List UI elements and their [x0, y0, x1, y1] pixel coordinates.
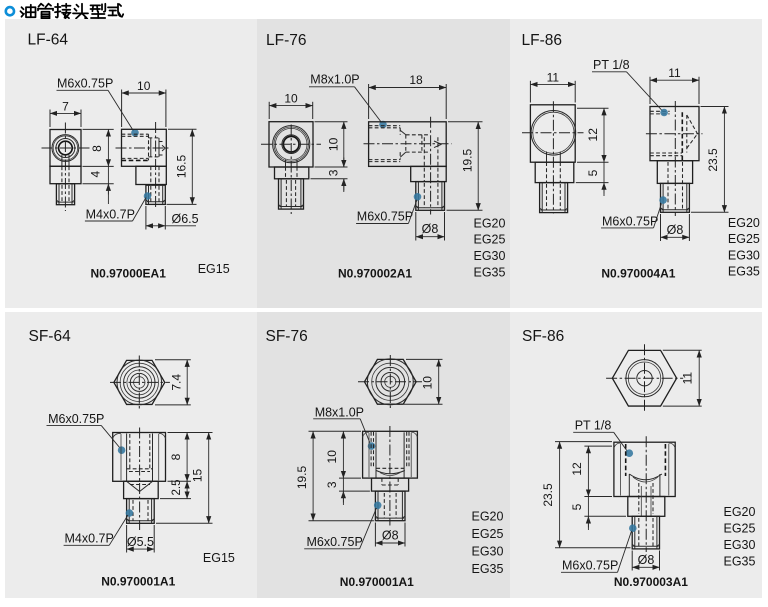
svg-text:19.5: 19.5: [295, 465, 309, 489]
svg-text:M6x0.75P: M6x0.75P: [57, 77, 113, 91]
svg-text:N0.970002A1: N0.970002A1: [338, 266, 412, 280]
svg-text:N0.97000EA1: N0.97000EA1: [91, 266, 167, 280]
svg-text:EG30: EG30: [724, 538, 756, 552]
svg-text:N0.970001A1: N0.970001A1: [340, 575, 414, 589]
svg-text:EG15: EG15: [203, 551, 235, 565]
svg-text:5: 5: [570, 503, 584, 510]
svg-text:8: 8: [90, 145, 104, 152]
svg-text:15: 15: [191, 469, 205, 483]
svg-text:10: 10: [421, 376, 435, 390]
svg-text:EG35: EG35: [472, 562, 504, 576]
svg-text:EG15: EG15: [198, 262, 230, 276]
svg-text:M4x0.7P: M4x0.7P: [86, 208, 135, 222]
svg-text:SF-86: SF-86: [522, 328, 564, 345]
svg-text:M4x0.7P: M4x0.7P: [65, 532, 114, 546]
svg-text:SF-64: SF-64: [29, 328, 72, 345]
svg-text:EG30: EG30: [728, 248, 760, 262]
svg-text:23.5: 23.5: [541, 483, 555, 507]
svg-text:3: 3: [326, 169, 340, 176]
svg-text:PT 1/8: PT 1/8: [593, 58, 630, 72]
svg-text:11: 11: [668, 66, 681, 80]
svg-text:M8x1.0P: M8x1.0P: [315, 405, 364, 419]
svg-text:11: 11: [547, 70, 560, 84]
svg-text:10: 10: [284, 92, 298, 106]
svg-text:PT 1/8: PT 1/8: [575, 419, 612, 433]
svg-text:EG25: EG25: [472, 527, 504, 541]
svg-text:M6x0.75P: M6x0.75P: [357, 210, 413, 224]
svg-text:M6x0.75P: M6x0.75P: [602, 214, 658, 228]
svg-text:Ø8: Ø8: [422, 222, 439, 236]
svg-text:LF-86: LF-86: [522, 32, 563, 49]
svg-text:18: 18: [409, 73, 423, 87]
svg-text:M6x0.75P: M6x0.75P: [307, 535, 363, 549]
svg-text:10: 10: [325, 450, 339, 464]
svg-text:12: 12: [570, 462, 584, 476]
svg-text:Ø8: Ø8: [667, 223, 684, 237]
svg-text:SF-76: SF-76: [266, 328, 308, 345]
svg-text:7: 7: [62, 100, 69, 114]
svg-text:8: 8: [169, 453, 183, 460]
svg-text:4: 4: [89, 171, 103, 178]
svg-text:EG25: EG25: [728, 232, 760, 246]
svg-text:Ø5.5: Ø5.5: [127, 535, 154, 549]
svg-text:LF-64: LF-64: [28, 31, 69, 48]
svg-text:N0.970001A1: N0.970001A1: [101, 575, 175, 589]
svg-text:EG25: EG25: [724, 522, 756, 536]
svg-text:Ø8: Ø8: [638, 553, 655, 567]
svg-text:EG35: EG35: [724, 555, 756, 569]
svg-text:EG20: EG20: [472, 509, 504, 523]
svg-text:3: 3: [325, 481, 339, 488]
svg-text:10: 10: [326, 137, 340, 151]
svg-text:11: 11: [681, 372, 695, 385]
svg-text:M6x0.75P: M6x0.75P: [562, 559, 618, 573]
svg-text:N0.970004A1: N0.970004A1: [601, 266, 675, 280]
svg-text:EG25: EG25: [474, 233, 506, 247]
svg-text:EG35: EG35: [474, 265, 506, 279]
svg-text:12: 12: [586, 128, 600, 142]
svg-text:23.5: 23.5: [706, 148, 720, 172]
svg-text:EG20: EG20: [728, 216, 760, 230]
svg-text:EG30: EG30: [474, 249, 506, 263]
svg-text:M8x1.0P: M8x1.0P: [310, 72, 359, 86]
svg-text:M6x0.75P: M6x0.75P: [48, 412, 104, 426]
svg-text:EG20: EG20: [474, 216, 506, 230]
svg-text:7.4: 7.4: [170, 374, 184, 391]
svg-text:Ø8: Ø8: [382, 529, 399, 543]
svg-text:EG20: EG20: [724, 505, 756, 519]
svg-text:10: 10: [137, 79, 151, 93]
svg-text:2.5: 2.5: [171, 480, 183, 496]
svg-text:N0.970003A1: N0.970003A1: [614, 575, 688, 589]
svg-text:LF-76: LF-76: [266, 32, 307, 49]
svg-text:16.5: 16.5: [174, 154, 188, 178]
svg-text:Ø6.5: Ø6.5: [172, 212, 199, 226]
svg-text:19.5: 19.5: [461, 148, 475, 172]
svg-text:EG35: EG35: [728, 265, 760, 279]
svg-text:5: 5: [586, 169, 600, 176]
svg-text:EG30: EG30: [472, 544, 504, 558]
